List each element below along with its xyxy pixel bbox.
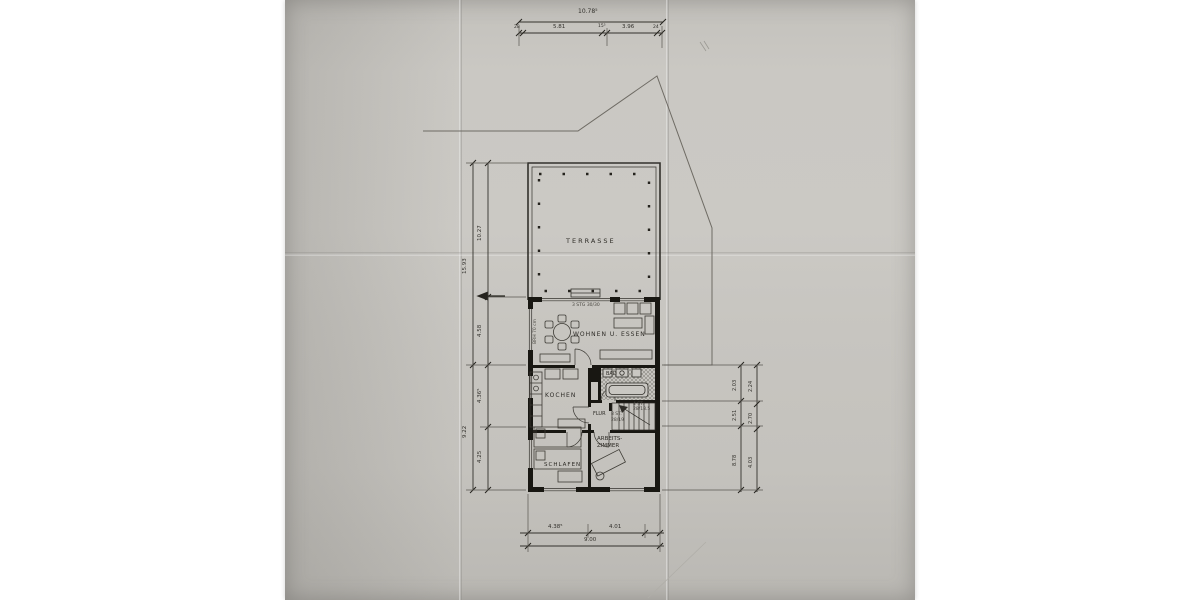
note-stair-b-line2: 28/19 (611, 419, 624, 424)
dim-right-outer-s2: 2.70 (749, 413, 754, 424)
dim-right-outer-s3: 4.03 (749, 457, 754, 468)
dimension-ticks (470, 19, 760, 549)
dim-top-total: 10.78⁵ (578, 9, 598, 15)
dim-right-outer-s1: 2.24 (749, 381, 754, 392)
note-step: 3 STG 30/30 (572, 304, 600, 309)
dim-right-inner-s1: 2.03 (733, 380, 738, 391)
dim-top-wall-right: 24 (653, 26, 659, 31)
dim-left-inner-s4: 4.25 (478, 451, 484, 463)
room-label-wohnen-essen: WOHNEN U. ESSEN (573, 332, 646, 338)
dim-left-outer-lower: 9.22 (463, 426, 469, 438)
dim-top-seg2: 3.96 (622, 25, 634, 31)
dim-left-inner-s2: 4.58 (478, 325, 484, 337)
property-boundary-line (423, 76, 712, 365)
note-parapet-height: BRH 70 cm (534, 319, 539, 344)
dim-left-outer-upper: 15.93 (463, 258, 469, 274)
dim-top-seg1: 5.81 (553, 25, 565, 31)
note-stair-a-line2: 28/18.5 (633, 408, 650, 413)
floorplan-drawing (0, 0, 1200, 600)
dim-top-mid: 15⁵ (598, 25, 606, 30)
dim-left-inner-s3: 4.36⁵ (478, 389, 484, 403)
room-label-terrasse: TERRASSE (566, 238, 616, 245)
room-label-kueche: KOCHEN (545, 393, 576, 399)
dim-bottom-seg1: 4.38⁵ (548, 525, 562, 531)
entrance-arrow (478, 293, 505, 300)
terrace-step (571, 289, 600, 297)
room-label-bad: BAD (606, 372, 617, 377)
room-label-arbeitszimmer-line1: ARBEITS- (597, 437, 622, 443)
room-label-arbeitszimmer-line2: ZIMMER (597, 444, 619, 450)
room-label-flur: FLUR (593, 412, 606, 417)
dim-right-inner-s3: 8.78 (733, 455, 738, 466)
note-stair-b-line1: 8 ST. (611, 413, 622, 418)
dim-bottom-total: 9.00 (584, 538, 596, 544)
room-label-schlafen: SCHLAFEN (544, 463, 581, 469)
dim-top-wall-left: 28 (514, 26, 520, 31)
dim-right-inner-s2: 2.51 (733, 410, 738, 421)
dim-bottom-seg2: 4.01 (609, 525, 621, 531)
dim-left-inner-s1: 10.27 (478, 225, 484, 241)
scanned-floorplan-photo: { "document": { "kind": "scanned archite… (0, 0, 1200, 600)
extension-lines (466, 26, 763, 552)
terrace-walls (528, 163, 660, 300)
furniture-bedroom (534, 427, 582, 482)
furniture-study (591, 449, 625, 480)
